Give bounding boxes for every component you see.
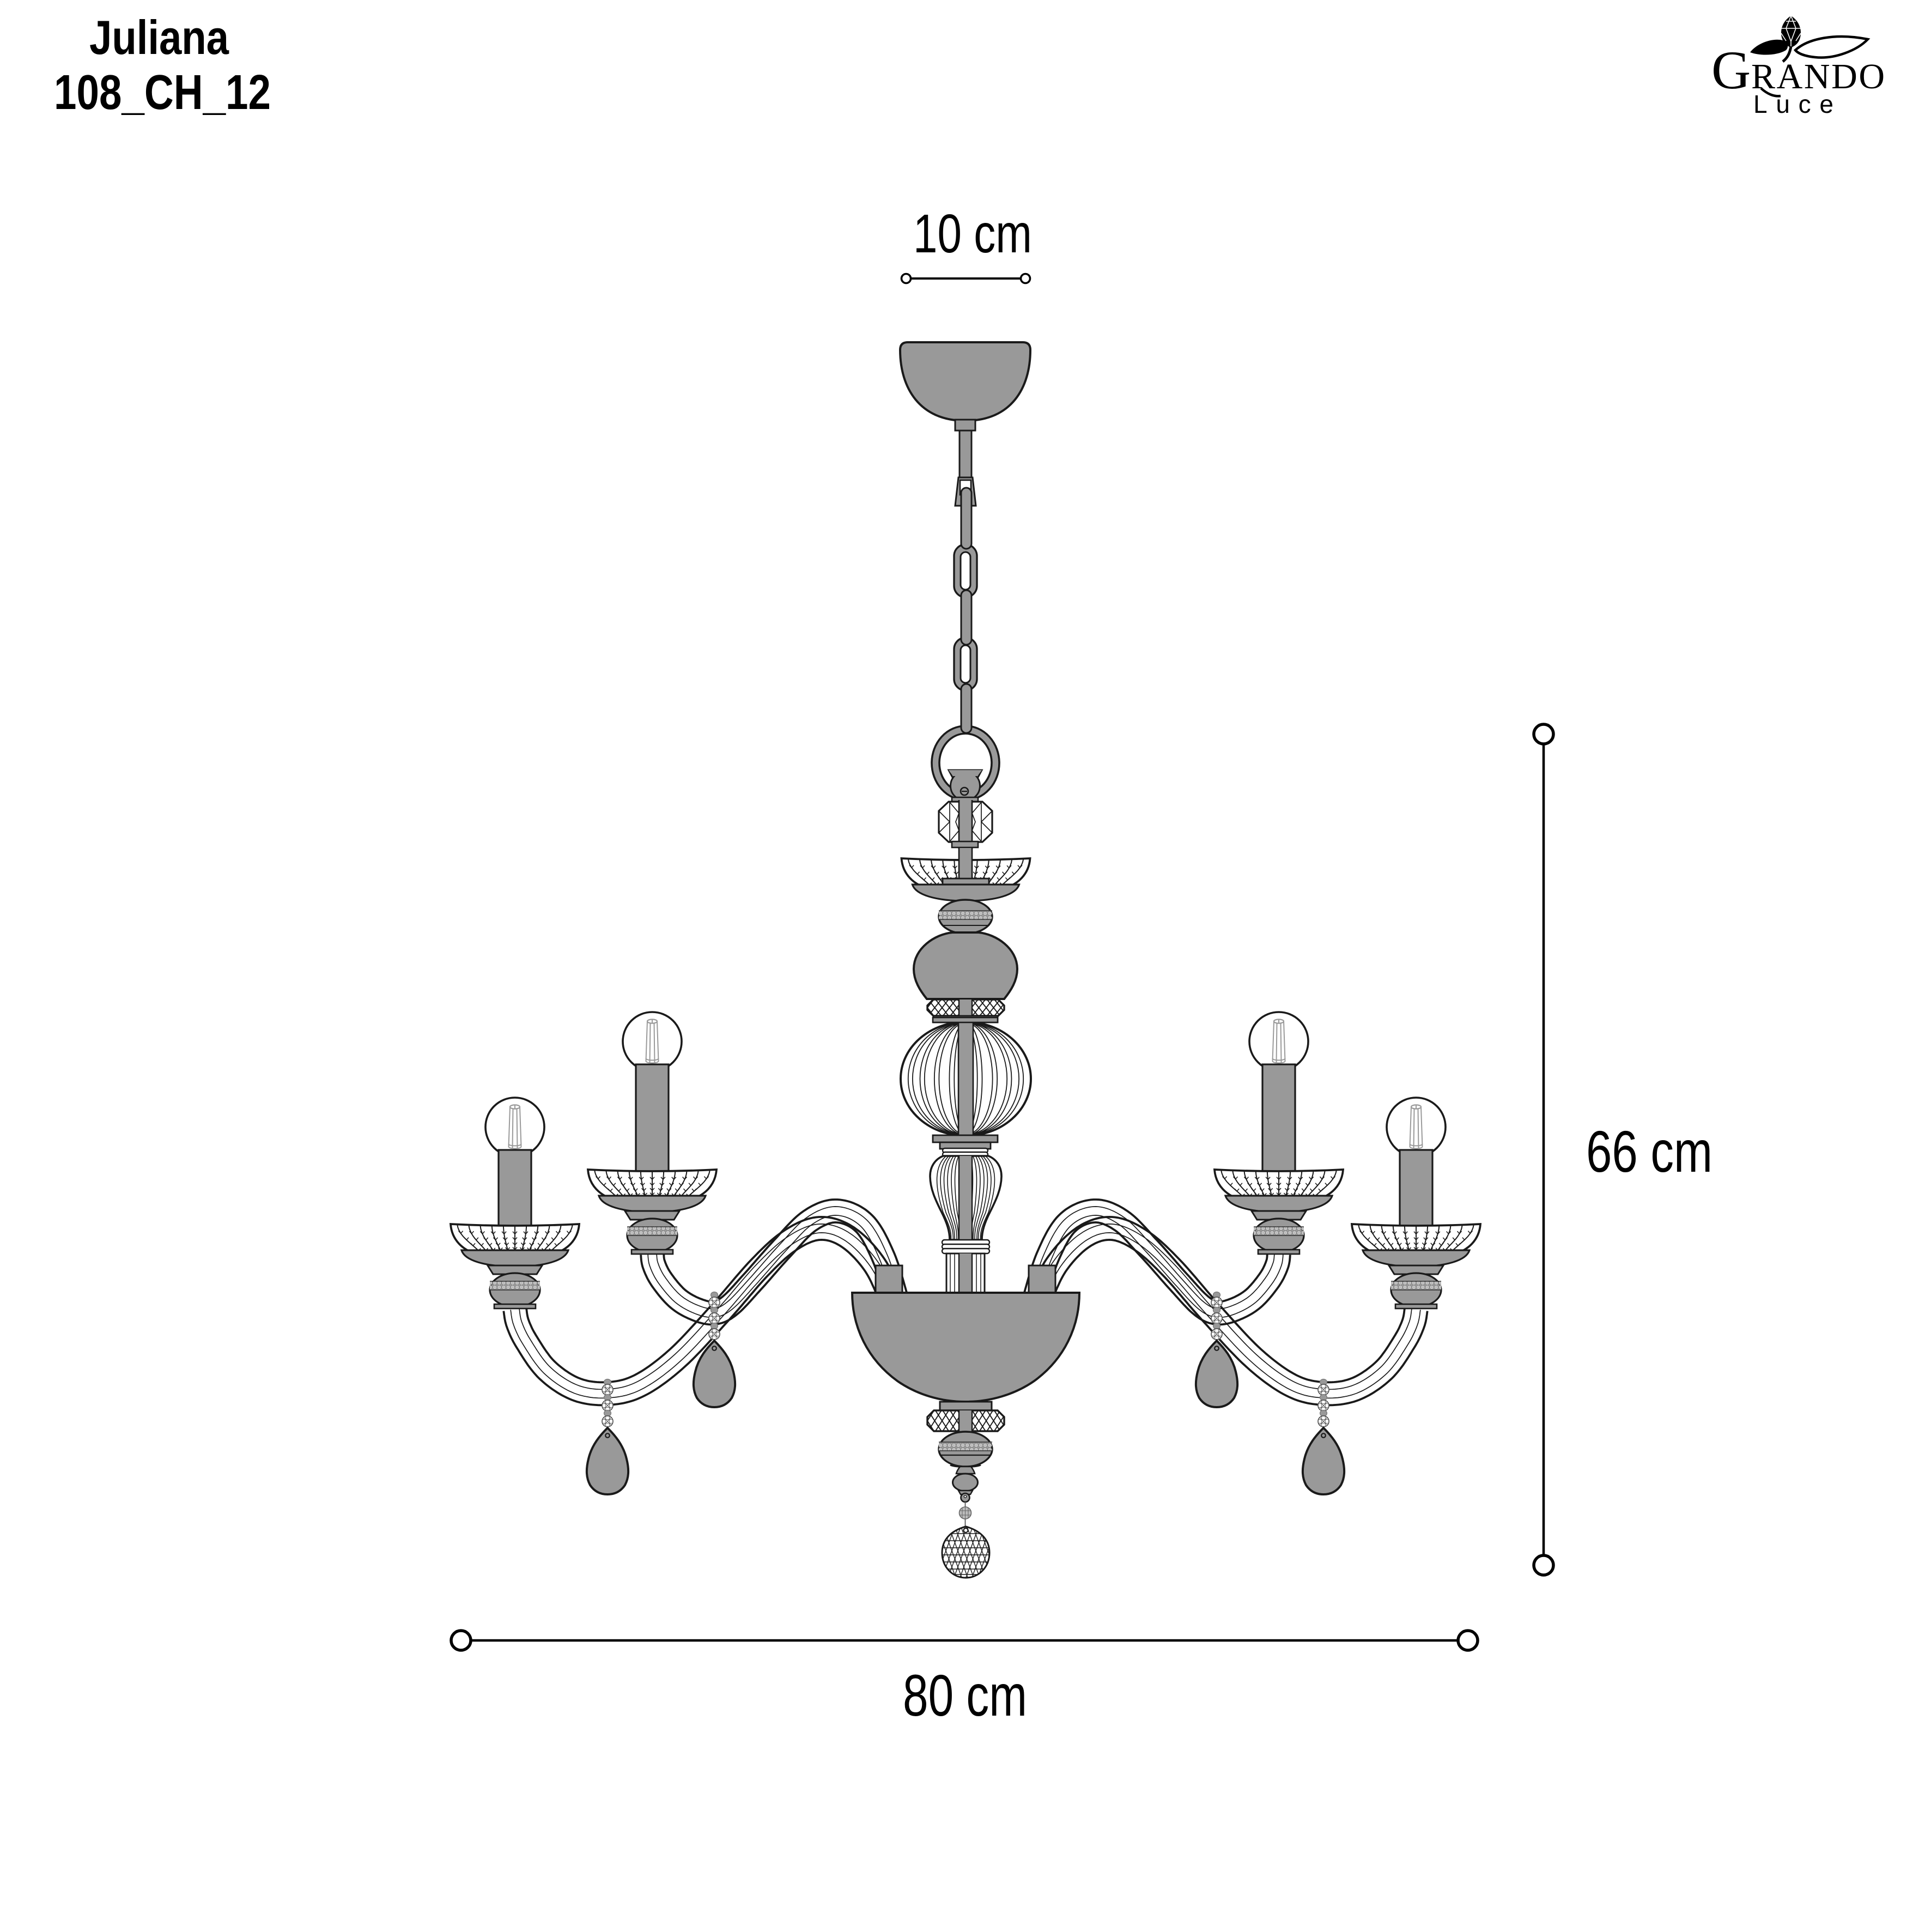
svg-text:10 cm: 10 cm <box>913 203 1032 264</box>
svg-text:Juliana: Juliana <box>89 10 229 64</box>
svg-text:G: G <box>1711 40 1751 100</box>
svg-text:108_CH_12: 108_CH_12 <box>54 65 271 120</box>
svg-text:66 cm: 66 cm <box>1586 1118 1713 1184</box>
svg-text:80 cm: 80 cm <box>903 1662 1027 1728</box>
